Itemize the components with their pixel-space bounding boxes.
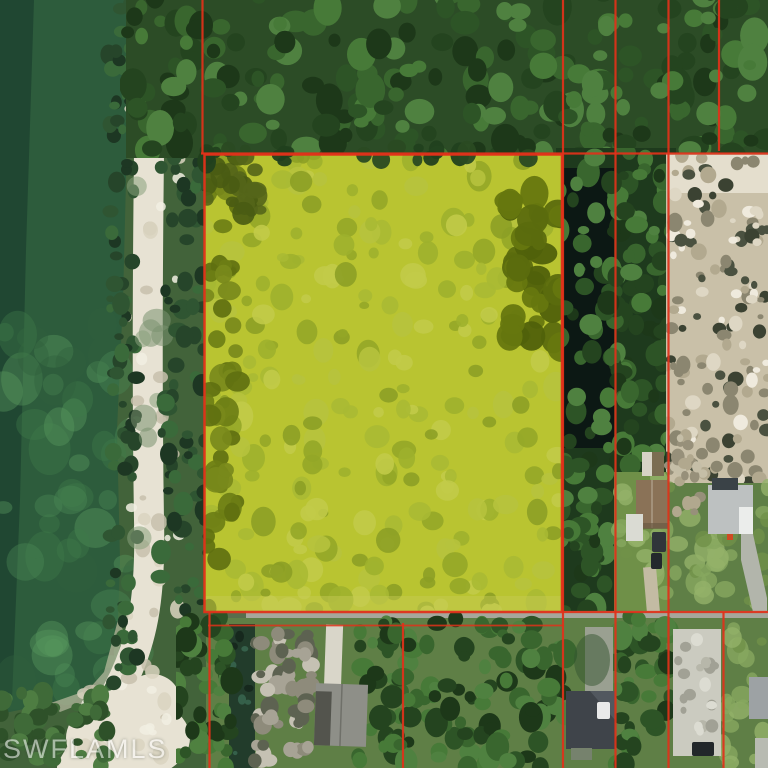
highlighted-parcel: [194, 146, 576, 619]
mls-watermark: SWFLAMLS: [3, 734, 168, 764]
cleared-land: [660, 147, 768, 486]
white-car: [597, 702, 610, 719]
red-object: [727, 534, 733, 540]
corner-pavement: [755, 738, 768, 768]
truck: [652, 532, 666, 552]
shed: [571, 748, 592, 760]
car: [651, 553, 662, 569]
driveway: [324, 624, 343, 687]
white-shed: [626, 514, 643, 541]
house-right-edge: [749, 677, 768, 719]
aerial-map-canvas: [0, 0, 768, 768]
garage: [739, 507, 753, 534]
parked-car: [692, 742, 714, 756]
below-road-parcels: [166, 608, 768, 768]
aerial-parcel-photo: SWFLAMLS: [0, 0, 768, 768]
